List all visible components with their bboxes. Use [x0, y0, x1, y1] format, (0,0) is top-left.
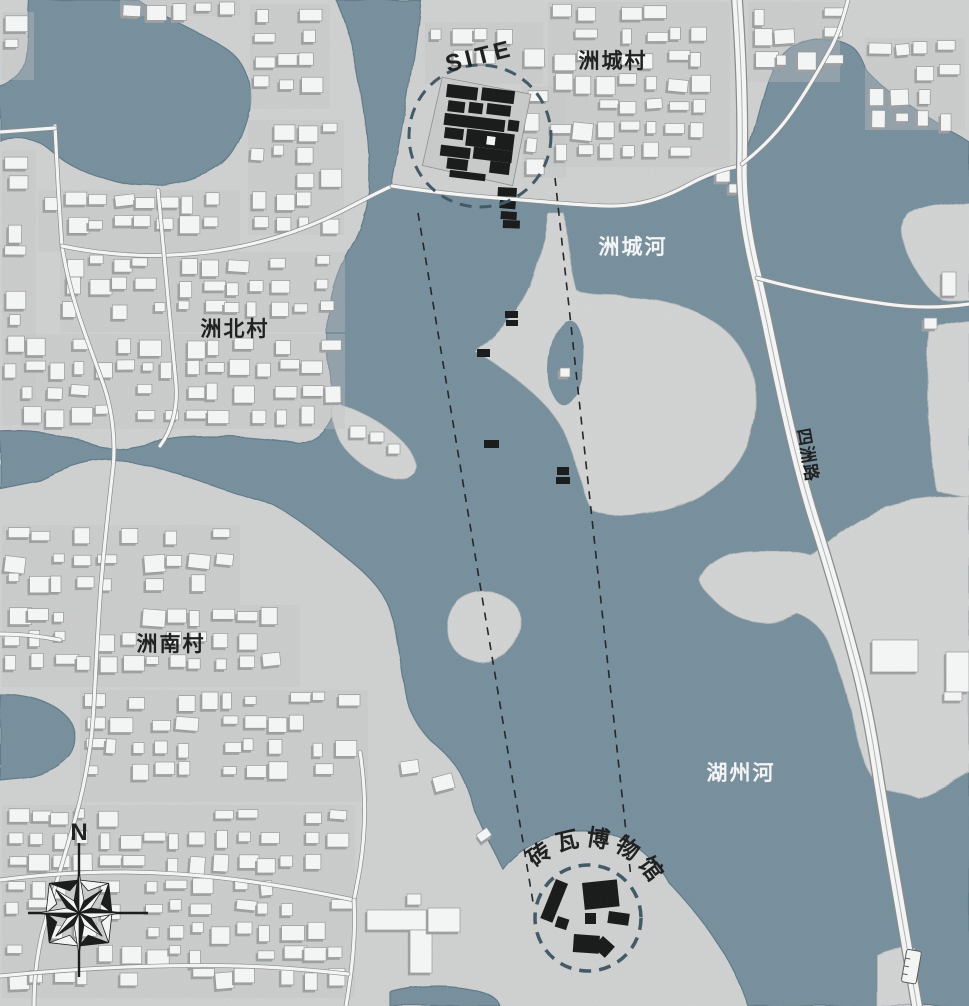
paper-grain-overlay: [0, 0, 969, 1006]
map-canvas: SITE 洲城村 洲城河 洲北村 洲南村 湖州河 四洲路 砖瓦博物馆 N: [0, 0, 969, 1006]
site-analysis-map: SITE 洲城村 洲城河 洲北村 洲南村 湖州河 四洲路 砖瓦博物馆 N: [0, 0, 969, 1006]
